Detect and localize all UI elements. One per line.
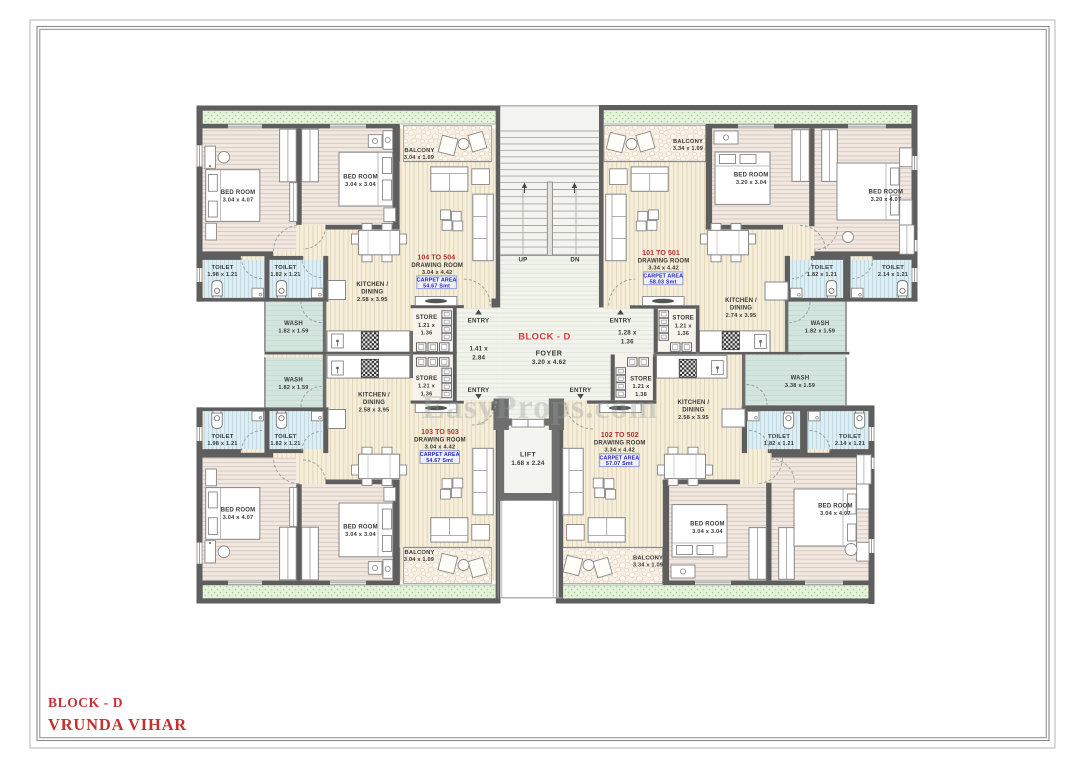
svg-text:BALCONY: BALCONY: [404, 148, 434, 154]
svg-text:BED ROOM: BED ROOM: [869, 190, 904, 196]
svg-text:DRAWING ROOM: DRAWING ROOM: [638, 258, 690, 264]
svg-text:STORE: STORE: [672, 316, 694, 322]
svg-text:1.98 x 1.21: 1.98 x 1.21: [207, 272, 237, 278]
svg-text:WASH: WASH: [284, 321, 303, 327]
svg-text:BED ROOM: BED ROOM: [818, 504, 853, 510]
svg-text:1.82 x 1.59: 1.82 x 1.59: [805, 329, 835, 335]
svg-text:1.82 x 1.21: 1.82 x 1.21: [807, 272, 837, 278]
svg-text:BED ROOM: BED ROOM: [221, 190, 256, 196]
svg-text:1.21 x: 1.21 x: [675, 323, 693, 329]
svg-text:KITCHEN /: KITCHEN /: [356, 282, 388, 288]
svg-text:3.04 x 4.07: 3.04 x 4.07: [223, 515, 254, 521]
svg-text:DN: DN: [570, 257, 580, 264]
svg-text:TOILET: TOILET: [211, 434, 233, 440]
svg-text:BALCONY: BALCONY: [633, 556, 663, 562]
svg-text:1.36: 1.36: [677, 331, 689, 337]
svg-text:2.84: 2.84: [472, 355, 485, 362]
svg-text:TOILET: TOILET: [811, 265, 833, 271]
svg-text:3.04 x 3.04: 3.04 x 3.04: [345, 532, 376, 538]
svg-text:3.20 x 4.62: 3.20 x 4.62: [532, 359, 566, 366]
svg-text:WASH: WASH: [791, 376, 810, 382]
svg-text:1.82 x 1.21: 1.82 x 1.21: [764, 441, 794, 447]
svg-text:UP: UP: [519, 257, 528, 264]
svg-text:WASH: WASH: [811, 321, 830, 327]
svg-text:VRUNDA VIHAR: VRUNDA VIHAR: [48, 715, 187, 734]
svg-text:2.74 x 3.95: 2.74 x 3.95: [726, 313, 757, 319]
svg-text:2.14 x 1.21: 2.14 x 1.21: [835, 441, 865, 447]
svg-text:BED ROOM: BED ROOM: [343, 175, 378, 181]
svg-text:TOILET: TOILET: [882, 265, 904, 271]
svg-text:3.34 x 4.42: 3.34 x 4.42: [604, 447, 635, 453]
svg-text:1.41 x: 1.41 x: [469, 346, 488, 353]
svg-text:TOILET: TOILET: [768, 434, 790, 440]
svg-text:TOILET: TOILET: [274, 265, 296, 271]
svg-text:3.04 x 4.07: 3.04 x 4.07: [223, 197, 254, 203]
svg-text:1.36: 1.36: [621, 339, 634, 346]
svg-text:BLOCK - D: BLOCK - D: [518, 332, 571, 342]
svg-text:1.82 x 1.21: 1.82 x 1.21: [270, 272, 300, 278]
svg-text:TOILET: TOILET: [211, 265, 233, 271]
svg-text:ENTRY: ENTRY: [610, 318, 632, 325]
svg-text:3.34 x 1.09: 3.34 x 1.09: [633, 563, 663, 569]
svg-text:DINING: DINING: [682, 408, 704, 414]
svg-text:BED ROOM: BED ROOM: [734, 172, 769, 178]
svg-text:BALCONY: BALCONY: [673, 139, 703, 145]
svg-text:BED ROOM: BED ROOM: [343, 524, 378, 530]
svg-text:3.04 x 1.09: 3.04 x 1.09: [404, 557, 434, 563]
svg-text:DRAWING ROOM: DRAWING ROOM: [411, 263, 463, 269]
svg-text:54.67 Smt: 54.67 Smt: [426, 458, 453, 464]
svg-text:3.20 x 3.04: 3.20 x 3.04: [736, 180, 767, 186]
svg-text:STORE: STORE: [630, 376, 652, 382]
svg-text:58.03 Smt: 58.03 Smt: [650, 279, 677, 285]
svg-text:1.82 x 1.21: 1.82 x 1.21: [270, 441, 300, 447]
svg-text:2.14 x 1.21: 2.14 x 1.21: [878, 272, 908, 278]
svg-text:EasyProps.com: EasyProps.com: [422, 389, 658, 426]
svg-text:2.58 x 3.95: 2.58 x 3.95: [678, 415, 709, 421]
svg-text:KITCHEN /: KITCHEN /: [725, 298, 757, 304]
svg-text:DRAWING ROOM: DRAWING ROOM: [594, 440, 646, 446]
svg-text:1.68 x 2.24: 1.68 x 2.24: [511, 460, 545, 467]
svg-text:DINING: DINING: [361, 290, 383, 296]
svg-text:BED ROOM: BED ROOM: [221, 508, 256, 514]
svg-text:KITCHEN /: KITCHEN /: [358, 392, 390, 398]
svg-text:DINING: DINING: [730, 306, 752, 312]
svg-text:101 TO 501: 101 TO 501: [642, 250, 680, 257]
svg-text:54.67 Smt: 54.67 Smt: [423, 283, 450, 289]
svg-text:STORE: STORE: [416, 376, 438, 382]
svg-text:2.58 x 3.95: 2.58 x 3.95: [357, 297, 388, 303]
svg-text:BLOCK - D: BLOCK - D: [48, 695, 123, 710]
svg-text:3.34 x 4.42: 3.34 x 4.42: [648, 265, 679, 271]
svg-text:102 TO 502: 102 TO 502: [601, 432, 639, 439]
svg-text:1.28 x: 1.28 x: [618, 330, 637, 337]
svg-text:3.04 x 3.04: 3.04 x 3.04: [692, 529, 723, 535]
svg-text:FOYER: FOYER: [536, 349, 563, 358]
svg-text:3.04 x 3.04: 3.04 x 3.04: [345, 182, 376, 188]
svg-text:TOILET: TOILET: [839, 434, 861, 440]
svg-text:104 TO 504: 104 TO 504: [417, 255, 455, 262]
svg-text:1.82 x 1.59: 1.82 x 1.59: [278, 385, 308, 391]
svg-text:3.04 x 4.42: 3.04 x 4.42: [422, 270, 453, 276]
svg-text:DRAWING ROOM: DRAWING ROOM: [414, 438, 466, 444]
svg-text:3.04 x 4.42: 3.04 x 4.42: [425, 445, 456, 451]
svg-text:LIFT: LIFT: [520, 452, 536, 459]
svg-text:57.07 Smt: 57.07 Smt: [606, 461, 633, 467]
svg-text:DINING: DINING: [363, 400, 385, 406]
svg-text:1.98 x 1.21: 1.98 x 1.21: [207, 441, 237, 447]
svg-text:BALCONY: BALCONY: [404, 550, 434, 556]
svg-text:BED ROOM: BED ROOM: [690, 521, 725, 527]
svg-text:1.21 x: 1.21 x: [418, 323, 436, 329]
svg-text:1.82 x 1.59: 1.82 x 1.59: [278, 329, 308, 335]
svg-text:ENTRY: ENTRY: [468, 318, 490, 325]
svg-text:3.34 x 1.09: 3.34 x 1.09: [673, 146, 703, 152]
svg-text:3.20 x 4.07: 3.20 x 4.07: [871, 197, 902, 203]
svg-text:1.36: 1.36: [421, 330, 433, 336]
svg-text:TOILET: TOILET: [274, 434, 296, 440]
svg-text:2.58 x 3.95: 2.58 x 3.95: [359, 407, 390, 413]
svg-text:WASH: WASH: [284, 378, 303, 384]
svg-text:3.38 x 1.59: 3.38 x 1.59: [785, 383, 815, 389]
svg-text:3.04 x 1.09: 3.04 x 1.09: [404, 155, 434, 161]
svg-text:3.04 x 4.07: 3.04 x 4.07: [820, 511, 851, 517]
svg-text:STORE: STORE: [416, 315, 438, 321]
svg-text:103 TO 503: 103 TO 503: [421, 429, 459, 436]
svg-text:KITCHEN /: KITCHEN /: [677, 400, 709, 406]
